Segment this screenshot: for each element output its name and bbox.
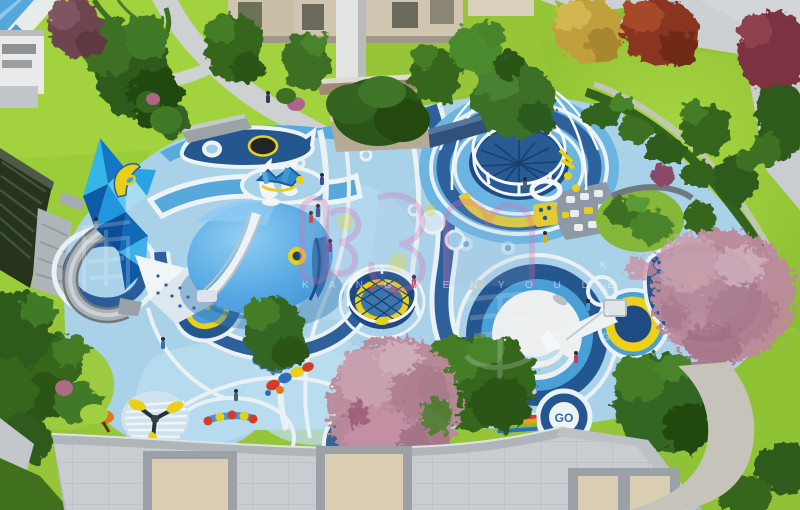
svg-text:G: G [602, 332, 610, 343]
svg-text:K A N G W E N Y O U L E: K A N G W E N Y O U L E [302, 280, 623, 291]
svg-text:K: K [600, 260, 607, 271]
svg-text:GO: GO [555, 411, 574, 425]
svg-text:N: N [602, 308, 609, 319]
svg-text:A: A [601, 284, 608, 295]
